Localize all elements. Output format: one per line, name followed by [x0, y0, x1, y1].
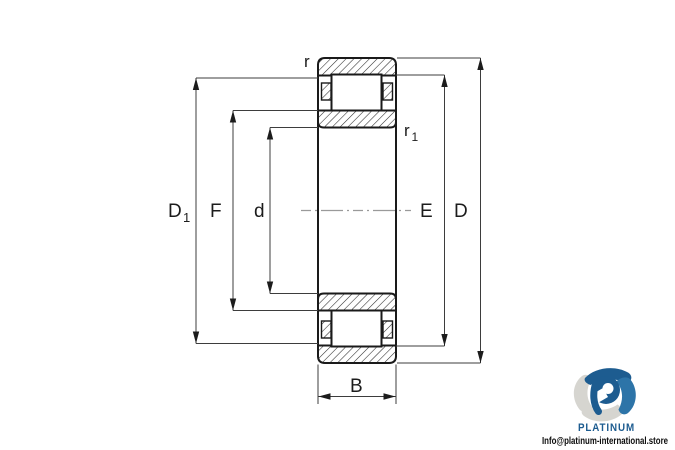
roller-bottom — [332, 311, 382, 347]
dim-F-arrow-up — [230, 111, 236, 123]
platinum-logo: PLATINUM Info@platinum-international.sto… — [542, 368, 668, 447]
dim-F-arrow-down — [230, 299, 236, 311]
label-r: r — [304, 52, 310, 71]
brand-email-text: Info@platinum-international.store — [542, 436, 668, 447]
inner-ring-top-section — [318, 111, 396, 128]
cage-top-right — [383, 83, 393, 100]
dim-B-arrow-right — [384, 393, 396, 399]
dim-B-arrow-left — [319, 393, 331, 399]
label-D-outer: D — [454, 201, 468, 222]
dim-E-arrow-up — [441, 75, 447, 87]
label-B: B — [350, 376, 363, 397]
brand-name-text: PLATINUM — [578, 422, 635, 434]
cage-bottom-left — [322, 321, 332, 338]
cage-top-left — [322, 83, 332, 100]
outer-ring-top-section — [318, 58, 396, 76]
roller-top — [332, 75, 382, 111]
dim-D-arrow-up — [477, 58, 483, 70]
label-E: E — [420, 201, 433, 222]
bearing-drawing-page: D 1 F d E D B r r 1 PLATINUM Info@platin… — [0, 0, 675, 450]
label-D1-subscript: 1 — [183, 210, 190, 225]
label-r1: r — [404, 121, 410, 140]
label-D1: D — [168, 201, 182, 222]
label-r1-subscript: 1 — [412, 130, 419, 144]
cage-bottom-right — [383, 321, 393, 338]
dim-E-arrow-down — [441, 334, 447, 346]
outer-ring-bottom-section — [318, 346, 396, 364]
label-F: F — [210, 201, 222, 222]
label-d: d — [254, 201, 265, 222]
inner-ring-bottom-section — [318, 294, 396, 311]
dim-D1-arrow-up — [193, 78, 199, 90]
logo-p-counter — [603, 383, 614, 394]
dim-d-arrow-down — [267, 282, 273, 294]
logo-petal-blue-right — [617, 377, 636, 414]
dim-d-arrow-up — [267, 128, 273, 140]
dim-D-arrow-down — [477, 351, 483, 363]
bearing-diagram-canvas: D 1 F d E D B r r 1 PLATINUM Info@platin… — [0, 0, 675, 450]
dim-D1-arrow-down — [193, 332, 199, 344]
